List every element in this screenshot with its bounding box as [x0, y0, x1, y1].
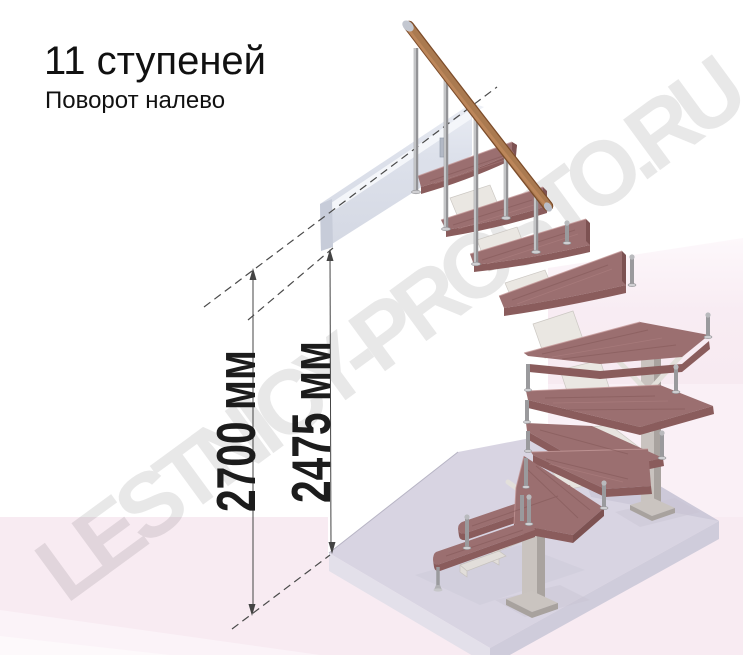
svg-text:2700 мм: 2700 мм — [206, 350, 267, 512]
svg-text:2475 мм: 2475 мм — [281, 341, 342, 503]
svg-text:Поворот налево: Поворот налево — [45, 87, 225, 114]
svg-text:11 ступеней: 11 ступеней — [44, 39, 266, 83]
